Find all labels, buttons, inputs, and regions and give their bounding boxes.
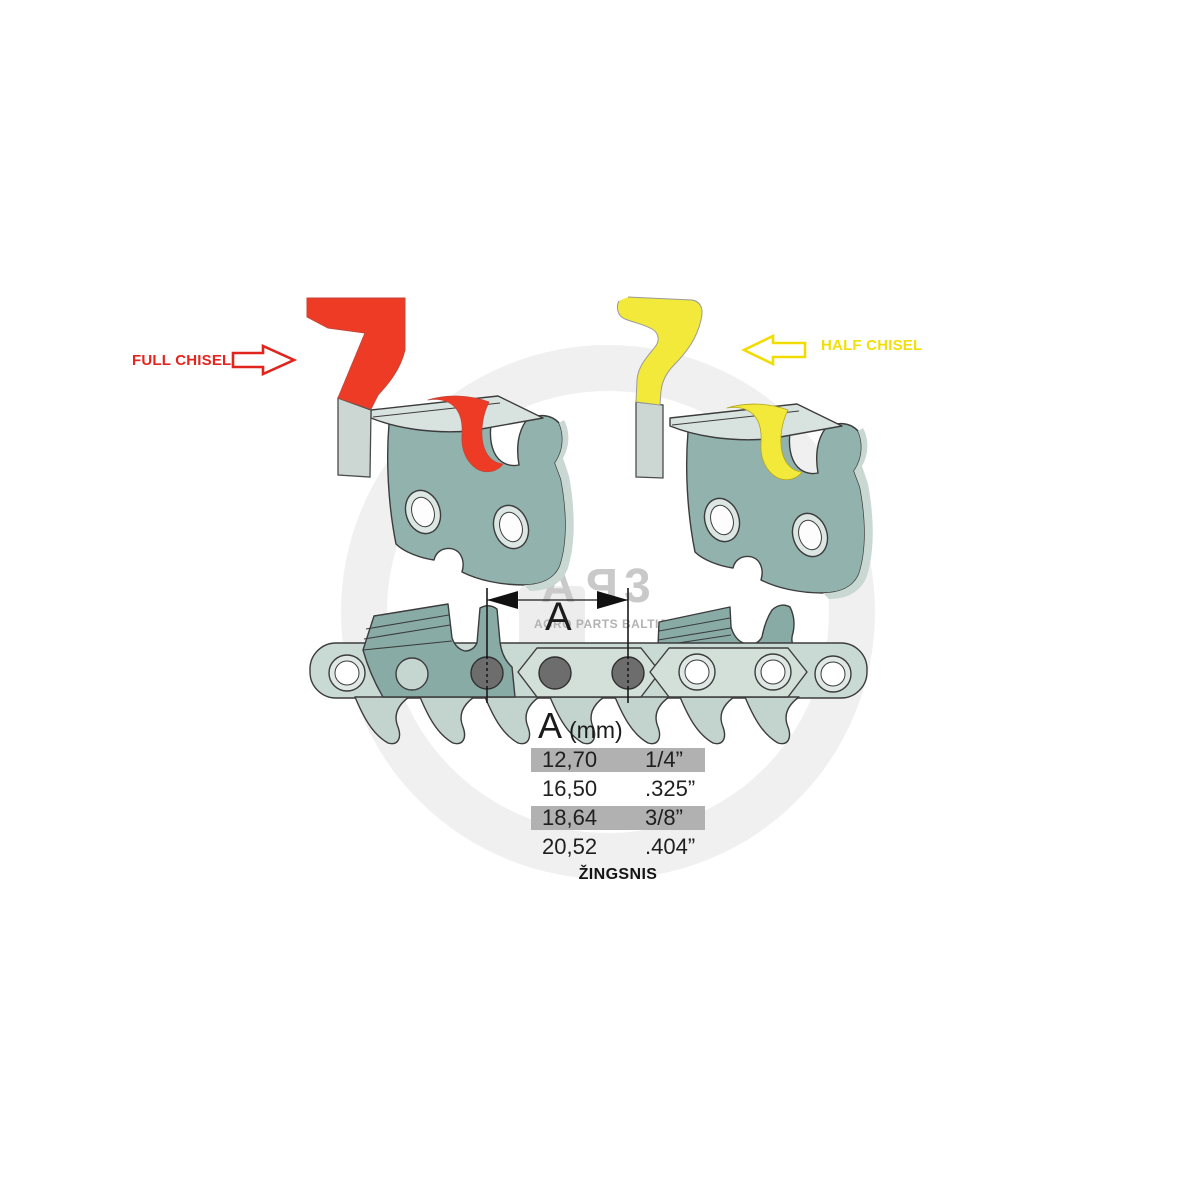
pitch-inch-value: .325” [645,777,695,801]
full-chisel-profile [307,298,405,409]
cutter-link-full-chisel [371,396,574,591]
pitch-mm-value: 18,64 [542,806,597,830]
table-row: 16,50 .325” [531,777,705,801]
pitch-inch-value: 3/8” [645,806,683,830]
cutter-link-half-chisel [670,404,873,599]
drive-link [485,697,539,744]
link-hole [329,655,365,691]
profile-shank-right [636,402,663,478]
half-chisel-label: HALF CHISEL [821,337,922,354]
pitch-mm-value: 20,52 [542,835,597,859]
full-chisel-label: FULL CHISEL [132,352,231,369]
drive-link [615,697,669,744]
profile-shank-left [338,398,371,477]
half-chisel-arrow-icon [744,336,805,364]
pitch-table-header-letter: A [538,708,562,744]
rivet-dark [539,657,571,689]
link-hole [679,654,715,690]
pitch-caption: ŽINGSNIS [531,866,705,884]
pitch-mm-value: 16,50 [542,777,597,801]
rivet-dark [471,657,503,689]
table-row: 12,70 1/4” [531,748,705,772]
drive-link [420,697,474,744]
illustration-svg: A P 3 AGRO PARTS BALTIJA [0,0,1188,1188]
pitch-inch-value: .404” [645,835,695,859]
pitch-table-header-unit: (mm) [569,717,623,744]
rivet-dark [612,657,644,689]
full-chisel-arrow-icon [233,346,294,374]
link-hole [755,654,791,690]
dimension-label: A [545,597,572,637]
pitch-table: 12,70 1/4” 16,50 .325” 18,64 3/8” 20,52 … [531,748,705,864]
link-hole [815,656,851,692]
rivet-light [396,658,428,690]
pitch-mm-value: 12,70 [542,748,597,772]
drive-link [680,697,734,744]
table-row: 20,52 .404” [531,835,705,859]
pitch-inch-value: 1/4” [645,748,683,772]
pitch-table-header: A (mm) [538,708,623,744]
table-row: 18,64 3/8” [531,806,705,830]
chain-diagram: A P 3 AGRO PARTS BALTIJA [0,0,1188,1188]
